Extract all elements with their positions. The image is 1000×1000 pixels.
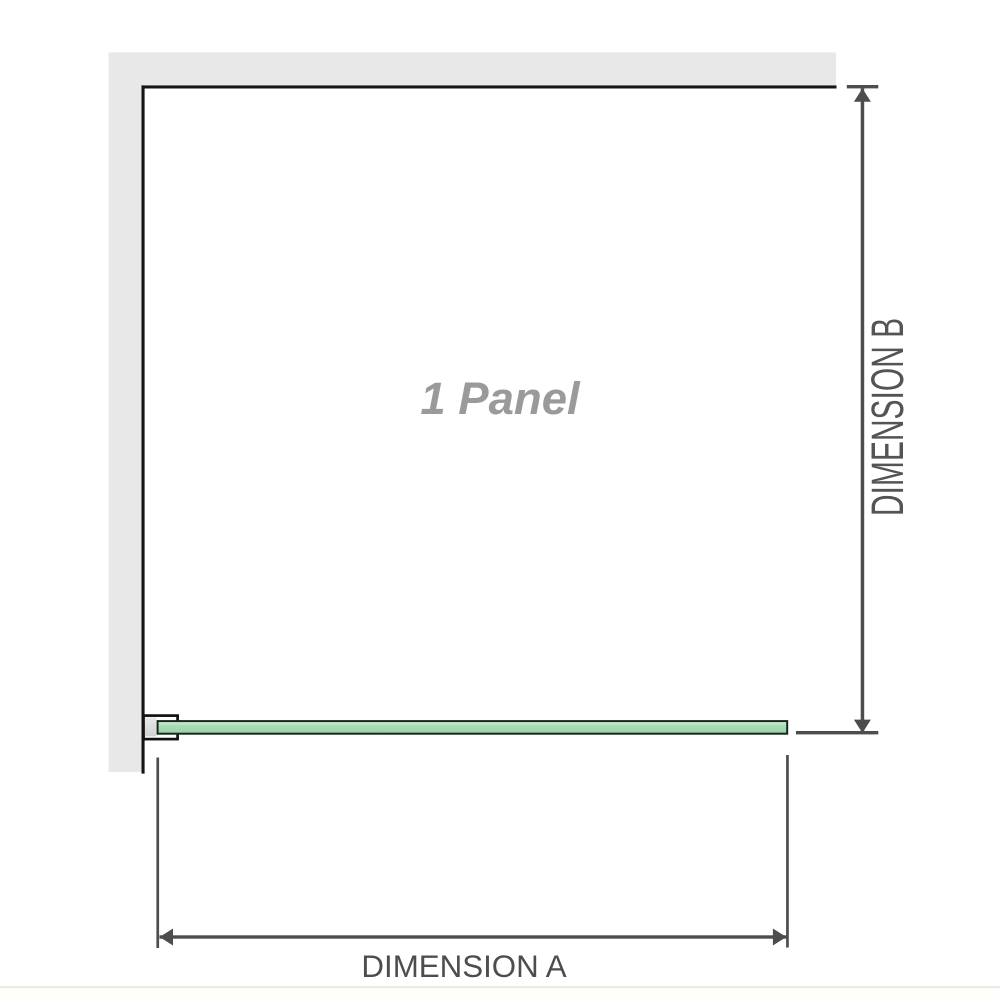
svg-text:DIMENSION B: DIMENSION B: [863, 318, 914, 516]
svg-text:1 Panel: 1 Panel: [420, 373, 581, 424]
svg-text:DIMENSION A: DIMENSION A: [361, 949, 566, 984]
